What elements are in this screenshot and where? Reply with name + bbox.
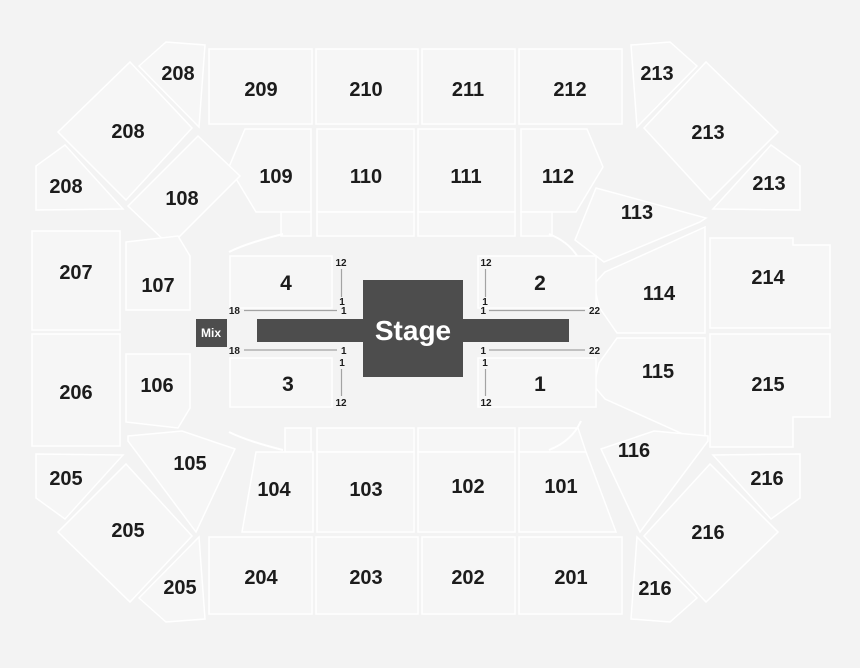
floor-section-4-label: 4 <box>280 272 292 295</box>
stage-label: Stage <box>375 315 451 346</box>
section-216-label: 216 <box>638 578 671 600</box>
section-109-label: 109 <box>259 166 292 188</box>
section-206-label: 206 <box>59 382 92 404</box>
section-112-label: 112 <box>542 166 574 188</box>
section-204-label: 204 <box>244 567 278 589</box>
section-213-label: 213 <box>691 122 724 144</box>
section-115[interactable] <box>594 338 705 444</box>
section-216-label: 216 <box>750 468 783 490</box>
seating-rows-strip <box>285 428 311 452</box>
row-marker-12: 12 <box>480 398 492 409</box>
section-107-label: 107 <box>141 275 174 297</box>
walkway-arc <box>229 234 283 252</box>
row-marker-18: 18 <box>229 306 241 317</box>
section-103-label: 103 <box>349 479 382 501</box>
row-marker-1: 1 <box>480 306 486 317</box>
row-marker-12: 12 <box>335 398 347 409</box>
section-105-label: 105 <box>173 453 206 475</box>
section-211-label: 211 <box>452 79 484 101</box>
mix-booth-label: Mix <box>201 326 221 340</box>
row-marker-1: 1 <box>341 306 347 317</box>
section-207-label: 207 <box>59 262 92 284</box>
floor-section-3[interactable] <box>230 358 332 407</box>
floor-section-2-label: 2 <box>534 272 546 295</box>
section-208-label: 208 <box>111 121 144 143</box>
section-115-label: 115 <box>642 361 674 383</box>
section-205-label: 205 <box>163 577 196 599</box>
seating-rows-strip <box>521 212 552 236</box>
seating-rows-strip <box>317 212 414 236</box>
section-108-label: 108 <box>165 188 198 210</box>
row-marker-1: 1 <box>339 358 345 369</box>
floor: 4 2 3 1 Stage Mix <box>196 256 596 407</box>
row-marker-22: 22 <box>589 306 601 317</box>
floor-section-3-label: 3 <box>282 373 294 396</box>
section-215-label: 215 <box>751 374 784 396</box>
seating-rows-strip <box>418 428 515 452</box>
section-106-label: 106 <box>140 375 173 397</box>
seating-rows-strip <box>281 212 311 236</box>
section-216-label: 216 <box>691 522 724 544</box>
seating-rows-strip <box>317 428 414 452</box>
section-208-label: 208 <box>161 63 194 85</box>
section-104-label: 104 <box>257 479 291 501</box>
seating-chart: 209 210 211 212 204 203 202 201 207 206 … <box>0 0 860 668</box>
section-107[interactable] <box>126 236 190 310</box>
section-213-label: 213 <box>640 63 673 85</box>
row-marker-22: 22 <box>589 346 601 357</box>
section-113-label: 113 <box>621 202 653 224</box>
seating-rows-strip <box>418 212 515 236</box>
section-209-label: 209 <box>244 79 277 101</box>
section-208-label: 208 <box>49 176 82 198</box>
row-marker-1: 1 <box>480 346 486 357</box>
section-213-label: 213 <box>752 173 785 195</box>
section-212-label: 212 <box>553 79 586 101</box>
row-marker-12: 12 <box>480 258 492 269</box>
row-marker-12: 12 <box>335 258 347 269</box>
row-marker-1: 1 <box>482 358 488 369</box>
section-101-label: 101 <box>544 476 577 498</box>
floor-section-1-label: 1 <box>534 373 546 396</box>
row-marker-18: 18 <box>229 346 241 357</box>
section-114-label: 114 <box>643 283 676 305</box>
section-202-label: 202 <box>451 567 484 589</box>
section-102-label: 102 <box>451 476 484 498</box>
row-marker-1: 1 <box>341 346 347 357</box>
section-201-label: 201 <box>554 567 587 589</box>
section-111-label: 111 <box>450 166 481 188</box>
section-110-label: 110 <box>350 166 382 188</box>
section-205-label: 205 <box>49 468 82 490</box>
walkway-arc <box>229 432 283 450</box>
section-116-label: 116 <box>618 440 650 462</box>
section-205-label: 205 <box>111 520 144 542</box>
section-203-label: 203 <box>349 567 382 589</box>
section-210-label: 210 <box>349 79 382 101</box>
section-214-label: 214 <box>751 267 785 289</box>
